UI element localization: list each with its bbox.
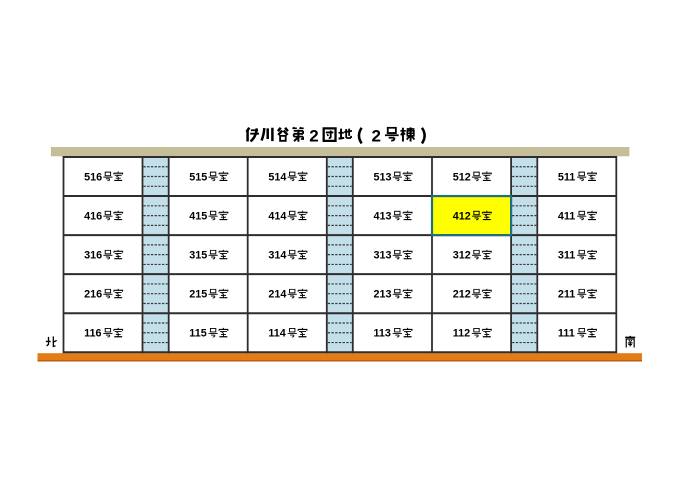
svg-text:116: 116 — [84, 328, 101, 340]
svg-text:511: 511 — [558, 171, 575, 183]
svg-text:411: 411 — [558, 211, 575, 223]
svg-text:415: 415 — [189, 211, 207, 223]
svg-text:113: 113 — [374, 328, 391, 340]
svg-text:214: 214 — [268, 289, 286, 301]
svg-text:316: 316 — [84, 250, 102, 262]
svg-text:216: 216 — [84, 289, 102, 301]
svg-text:414: 414 — [268, 211, 286, 223]
svg-text:111: 111 — [558, 328, 575, 340]
svg-text:311: 311 — [558, 250, 575, 262]
svg-text:114: 114 — [268, 328, 285, 340]
svg-text:211: 211 — [558, 289, 575, 301]
svg-text:416: 416 — [84, 211, 102, 223]
svg-text:413: 413 — [374, 211, 392, 223]
svg-text:112: 112 — [453, 328, 470, 340]
svg-text:2: 2 — [309, 126, 318, 145]
svg-text:512: 512 — [453, 171, 471, 183]
svg-text:412: 412 — [453, 211, 471, 223]
svg-text:213: 213 — [374, 289, 392, 301]
svg-text:212: 212 — [453, 289, 471, 301]
svg-text:314: 314 — [268, 250, 286, 262]
svg-text:516: 516 — [84, 171, 102, 183]
svg-text:2: 2 — [371, 126, 380, 145]
svg-text:315: 315 — [189, 250, 207, 262]
svg-text:115: 115 — [189, 328, 206, 340]
svg-text:313: 313 — [374, 250, 392, 262]
svg-text:513: 513 — [374, 171, 392, 183]
svg-text:312: 312 — [453, 250, 471, 262]
svg-text:215: 215 — [189, 289, 207, 301]
svg-text:515: 515 — [189, 171, 207, 183]
svg-text:514: 514 — [268, 171, 286, 183]
